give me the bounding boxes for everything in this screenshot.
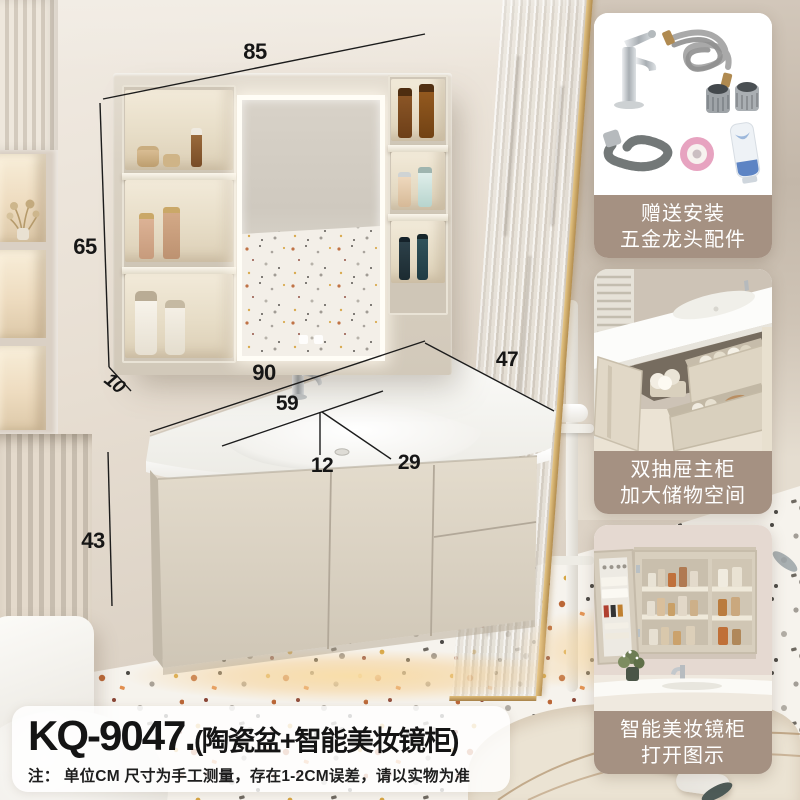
sealing-tape — [680, 137, 714, 171]
cosmetic-jar — [137, 146, 159, 167]
product-model: KQ-9047. — [28, 712, 194, 760]
side-panel-column: 赠送安装 五金龙头配件 — [594, 13, 772, 774]
open-mirror-cabinet — [634, 547, 756, 653]
wall-slat-panel-top — [0, 0, 58, 150]
pump-bottle — [135, 291, 157, 355]
niche-shelf — [0, 250, 46, 338]
shelf-items — [391, 79, 445, 141]
side-panel-hardware: 赠送安装 五金龙头配件 — [594, 13, 772, 258]
open-mirror-door — [594, 550, 638, 664]
pump-bottle — [165, 300, 185, 355]
dim-label-counter-width: 90 — [252, 360, 275, 386]
side-panel-smart-mirror: 智能美妆镜柜 打开图示 — [594, 525, 772, 774]
dim-label-mirror-height: 65 — [73, 234, 96, 260]
product-listing-image: 85 65 10 90 59 47 12 29 43 KQ-9047. (陶瓷盆… — [0, 0, 800, 800]
amber-bottle — [419, 84, 434, 138]
dim-label-counter-depth: 47 — [496, 348, 518, 372]
shelf-divider — [122, 173, 236, 180]
shelf-items — [391, 221, 445, 283]
shelf-divider — [388, 145, 448, 152]
caption-line: 赠送安装 — [641, 201, 725, 227]
shelf-divider — [122, 267, 236, 274]
ceramic-basin — [228, 397, 483, 471]
shelf-items — [125, 180, 233, 262]
niche-shelf — [0, 154, 46, 242]
perfume-bottle — [418, 167, 432, 207]
drawers-caption: 双抽屉主柜 加大储物空间 — [594, 451, 772, 514]
shelf-items — [125, 274, 233, 358]
amber-bottle — [398, 88, 412, 138]
towel-stand-pole — [566, 300, 578, 692]
mirror-cabinet — [113, 73, 452, 375]
product-note: 注： 单位CM 尺寸为手工测量，存在1-2CM误差，请以实物为准 — [28, 764, 498, 786]
smart-mirror-caption: 智能美妆镜柜 打开图示 — [594, 711, 772, 774]
towel-shelf — [550, 556, 594, 565]
hardware-caption: 赠送安装 五金龙头配件 — [594, 195, 772, 258]
dark-bottle — [417, 234, 428, 280]
cosmetic-jar — [163, 154, 180, 167]
product-title: KQ-9047. (陶瓷盆+智能美妆镜柜) — [28, 712, 498, 760]
niche-shelf — [0, 346, 46, 430]
product-info-overlay: KQ-9047. (陶瓷盆+智能美妆镜柜) 注： 单位CM 尺寸为手工测量，存在… — [12, 706, 510, 792]
dim-label-basin-depth: 29 — [398, 451, 420, 475]
drawer-cabinet-photo — [594, 269, 772, 451]
dark-bottle — [399, 237, 410, 280]
shelf-items — [391, 152, 445, 210]
mirror-touch-controls[interactable] — [299, 335, 323, 344]
shelf-items — [125, 90, 233, 170]
open-door — [594, 357, 642, 451]
caption-line: 打开图示 — [641, 743, 725, 769]
hardware-kit-illustration — [594, 13, 772, 195]
lotion-bottle — [163, 207, 180, 259]
caption-line: 智能美妆镜柜 — [620, 717, 746, 743]
hardware-photo — [594, 13, 772, 195]
mirror-cabinet-left-shelves — [122, 85, 236, 363]
dim-label-basin-front-offset: 12 — [311, 454, 333, 478]
product-spec: (陶瓷盆+智能美妆镜柜) — [194, 718, 458, 758]
dim-label-basin-width: 59 — [276, 392, 298, 416]
lotion-bottle — [139, 213, 154, 259]
side-panel-drawers: 双抽屉主柜 加大储物空间 — [594, 269, 772, 514]
wall-niche-shelving — [0, 150, 58, 434]
smart-mirror-illustration — [594, 525, 772, 711]
caption-line: 加大储物空间 — [620, 483, 746, 509]
dried-plant — [3, 184, 43, 240]
drain — [335, 449, 349, 455]
caption-line: 五金龙头配件 — [620, 227, 746, 253]
dropper-bottle — [191, 128, 202, 167]
smart-mirror-photo — [594, 525, 772, 711]
mirror-cabinet-right-shelves — [388, 75, 448, 315]
perfume-bottle — [398, 172, 411, 207]
drawer-cabinet-illustration — [594, 269, 772, 451]
led-mirror — [237, 95, 385, 361]
leaf-decor — [770, 548, 800, 575]
gold-frame-base — [449, 696, 536, 701]
mirror-reflection — [242, 206, 380, 356]
caption-line: 双抽屉主柜 — [631, 457, 736, 483]
shelf-divider — [388, 214, 448, 221]
dim-label-mirror-width: 85 — [243, 39, 266, 65]
dim-label-cabinet-height: 43 — [81, 528, 104, 554]
